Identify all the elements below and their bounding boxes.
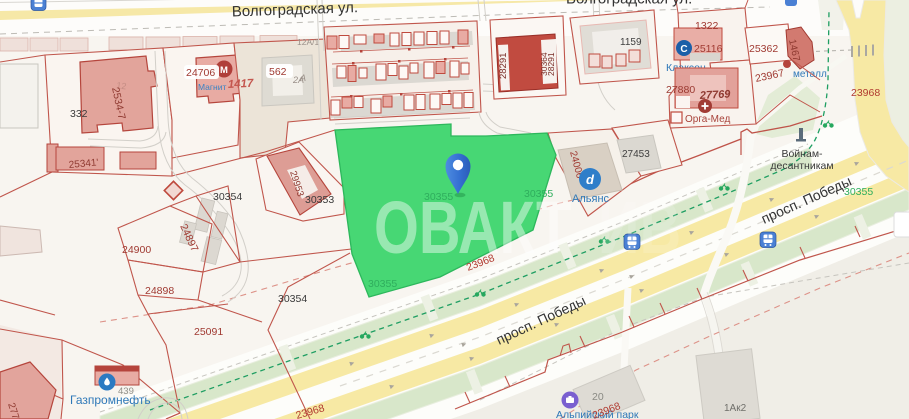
svg-text:1322: 1322 <box>695 20 719 32</box>
svg-text:30355: 30355 <box>424 191 453 203</box>
svg-text:27453: 27453 <box>622 149 650 160</box>
svg-text:25362: 25362 <box>749 43 778 55</box>
svg-text:А: А <box>299 73 306 83</box>
svg-text:30354: 30354 <box>278 293 307 305</box>
svg-text:24898: 24898 <box>145 285 174 297</box>
svg-text:Газпромнефть: Газпромнефть <box>70 393 151 407</box>
svg-text:ИВ: ИВ <box>598 187 681 270</box>
svg-text:562: 562 <box>269 66 287 78</box>
svg-text:1159: 1159 <box>620 37 642 48</box>
svg-text:30355: 30355 <box>368 278 397 290</box>
svg-text:25091: 25091 <box>194 326 223 338</box>
svg-text:28291: 28291 <box>498 53 509 79</box>
svg-text:металл: металл <box>793 69 827 80</box>
svg-text:28291: 28291 <box>546 52 556 76</box>
svg-text:23968: 23968 <box>851 87 880 99</box>
svg-text:d: d <box>586 172 595 187</box>
svg-text:Волгоградская ул.: Волгоградская ул. <box>566 0 692 8</box>
svg-text:30354: 30354 <box>213 191 242 203</box>
svg-text:25116: 25116 <box>694 43 723 55</box>
svg-text:12А/1: 12А/1 <box>297 37 319 47</box>
svg-text:30353: 30353 <box>305 194 334 206</box>
svg-text:27880: 27880 <box>666 84 695 96</box>
svg-text:24900: 24900 <box>122 244 151 256</box>
svg-text:Войнам-: Войнам- <box>781 148 823 160</box>
svg-text:20: 20 <box>592 391 604 403</box>
svg-text:C: C <box>680 44 687 55</box>
svg-text:1417: 1417 <box>228 78 255 91</box>
svg-text:Магнит: Магнит <box>198 82 226 92</box>
svg-text:30355: 30355 <box>524 188 553 200</box>
svg-text:1Ак2: 1Ак2 <box>724 403 747 414</box>
svg-text:332: 332 <box>70 108 88 120</box>
svg-text:Орга-Мед: Орга-Мед <box>685 114 730 125</box>
svg-text:М: М <box>220 65 228 76</box>
svg-text:24706: 24706 <box>186 67 215 79</box>
svg-text:десантникам: десантникам <box>770 160 833 172</box>
